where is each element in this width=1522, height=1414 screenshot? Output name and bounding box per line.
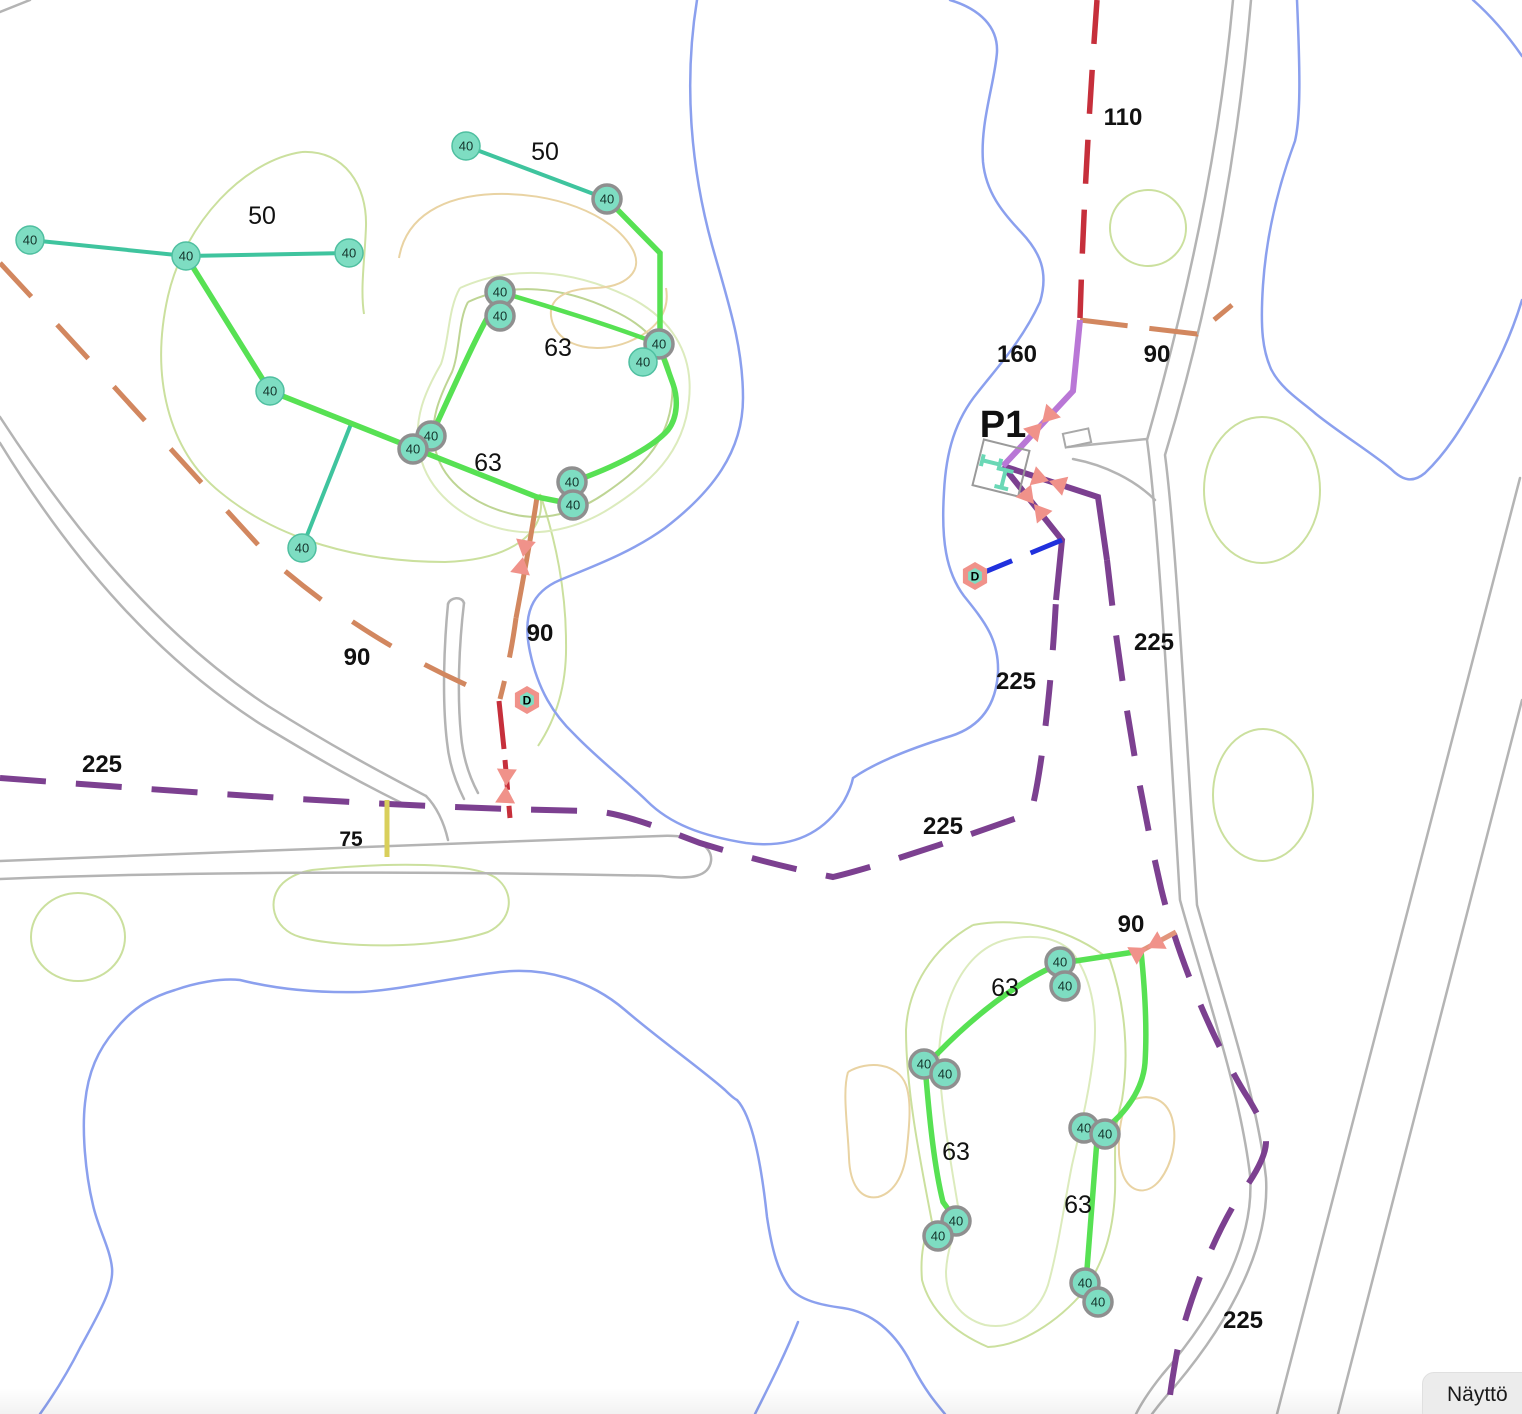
- display-settings-button[interactable]: Näyttö: [1422, 1372, 1522, 1414]
- pipe-node[interactable]: 40: [559, 491, 587, 519]
- pipe-node-label: 40: [493, 285, 507, 300]
- layer-roads: [0, 0, 1522, 1414]
- diameter-label: 75: [339, 828, 363, 851]
- diameter-label: 225: [82, 751, 122, 778]
- diameter-label: 63: [544, 334, 572, 362]
- pipe-63-lower-east[interactable]: [1102, 951, 1146, 1131]
- pipe-node-label: 40: [652, 337, 666, 352]
- pipe-node-label: 40: [295, 541, 309, 556]
- pipe-node[interactable]: 40: [629, 348, 657, 376]
- diameter-label: 63: [1064, 1191, 1092, 1219]
- pipe-90-east[interactable]: [1080, 305, 1232, 334]
- road-branch-upper: [1068, 439, 1147, 447]
- pipe-node[interactable]: 40: [452, 132, 480, 160]
- pump-station[interactable]: [973, 440, 1030, 497]
- water-stream-fork: [755, 1322, 798, 1414]
- contour-tan-lower-right: [1119, 1097, 1174, 1190]
- diameter-label: P1: [980, 404, 1026, 446]
- pipe-node-label: 40: [1098, 1127, 1112, 1142]
- pipe-red-stub-solid[interactable]: [499, 701, 504, 749]
- road-ne-left: [1136, 0, 1250, 1414]
- pipe-node[interactable]: 40: [1084, 1288, 1112, 1316]
- valve-icon[interactable]: [495, 768, 517, 803]
- map-canvas[interactable]: DD40404040404040404040404040404040404040…: [0, 0, 1522, 1414]
- road-west-upper: [0, 417, 426, 796]
- diameter-label: 225: [1223, 1307, 1263, 1334]
- outlet-marker[interactable]: D: [963, 562, 987, 590]
- diameter-label: 63: [474, 449, 502, 477]
- contour-circle-topright: [1110, 190, 1186, 266]
- diameter-label: 225: [1134, 629, 1174, 656]
- diameter-label: 90: [527, 620, 554, 647]
- contour-oval-east-1: [1204, 417, 1320, 563]
- diameter-label: 50: [248, 202, 276, 230]
- water-lake-northeast-corner: [1473, 0, 1522, 56]
- pipe-node-label: 40: [636, 355, 650, 370]
- pipe-node-label: 40: [566, 498, 580, 513]
- contour-oval-east-2: [1213, 729, 1313, 861]
- layer-contours: [31, 152, 1320, 1347]
- pipe-node[interactable]: 40: [486, 302, 514, 330]
- pump-symbol-icon: [994, 486, 1008, 489]
- contour-blob-south: [274, 865, 509, 946]
- contour-tan-lower-left: [845, 1065, 909, 1197]
- diameter-label: 63: [991, 974, 1019, 1002]
- outlet-marker-label: D: [971, 570, 980, 584]
- pipe-node-label: 40: [459, 139, 473, 154]
- pipe-node[interactable]: 40: [399, 435, 427, 463]
- pipe-node[interactable]: 40: [1091, 1120, 1119, 1148]
- road-stub-cap: [448, 598, 464, 604]
- pipe-node-label: 40: [931, 1229, 945, 1244]
- pipe-63-upper-ring-east[interactable]: [572, 345, 676, 482]
- pipe-node[interactable]: 40: [931, 1060, 959, 1088]
- outlet-marker-label: D: [523, 694, 532, 708]
- pipe-outlet-to-d[interactable]: [975, 540, 1062, 576]
- pipe-90-west-diagonal[interactable]: [0, 263, 499, 699]
- diameter-label: 160: [997, 341, 1037, 368]
- road-stub-right: [459, 603, 478, 793]
- layer-labels: 5050636363636311016090909090225225225225…: [82, 104, 1263, 1334]
- pipe-node-label: 40: [938, 1067, 952, 1082]
- pipe-node-label: 40: [917, 1057, 931, 1072]
- pipe-node[interactable]: 40: [924, 1222, 952, 1250]
- water-lake-northeast: [1262, 0, 1522, 479]
- water-stream-south: [40, 971, 945, 1414]
- pump-symbol-icon: [1001, 470, 1005, 487]
- pipe-node[interactable]: 40: [172, 242, 200, 270]
- pipe-node[interactable]: 40: [16, 226, 44, 254]
- pipe-node[interactable]: 40: [256, 377, 284, 405]
- pipe-110-main[interactable]: [1080, 0, 1097, 318]
- pipe-node[interactable]: 40: [335, 239, 363, 267]
- pipe-node-label: 40: [342, 246, 356, 261]
- pipe-node-label: 40: [263, 384, 277, 399]
- pipe-node-label: 40: [23, 233, 37, 248]
- layer-markers: DD: [515, 562, 987, 714]
- pump-symbol-icon: [982, 460, 999, 464]
- pipe-node-label: 40: [1058, 979, 1072, 994]
- road-se-left: [1277, 478, 1520, 1414]
- pipe-node[interactable]: 40: [288, 534, 316, 562]
- diameter-label: 110: [1104, 104, 1143, 131]
- road-se-right: [1338, 700, 1522, 1414]
- pipe-node-label: 40: [949, 1214, 963, 1229]
- diameter-label: 225: [996, 668, 1036, 695]
- road-junction-link: [426, 796, 448, 840]
- outlet-marker[interactable]: D: [515, 686, 539, 714]
- pipe-node-label: 40: [493, 309, 507, 324]
- layer-station: [973, 440, 1030, 497]
- pipe-node-label: 40: [1091, 1295, 1105, 1310]
- pipe-225-south-solid[interactable]: [1003, 466, 1062, 600]
- contour-upper-left-outer: [161, 152, 541, 562]
- diameter-label: 50: [531, 138, 559, 166]
- contour-circle-southwest: [31, 893, 125, 981]
- pipe-50-branch[interactable]: [302, 424, 351, 548]
- pipe-node-label: 40: [565, 475, 579, 490]
- pipe-node-label: 40: [406, 442, 420, 457]
- pipe-node-label: 40: [1078, 1276, 1092, 1291]
- pipe-90-mid-dashed[interactable]: [500, 618, 516, 699]
- pipe-node-label: 40: [179, 249, 193, 264]
- contour-upper-left-oval-east: [302, 152, 366, 314]
- map-viewport: DD40404040404040404040404040404040404040…: [0, 0, 1522, 1414]
- diameter-label: 90: [344, 644, 371, 671]
- diameter-label: 225: [923, 813, 963, 840]
- pipe-node[interactable]: 40: [1051, 972, 1079, 1000]
- diameter-label: 90: [1118, 911, 1145, 938]
- road-corner-topleft: [0, 0, 30, 12]
- pipe-node-label: 40: [600, 192, 614, 207]
- pipe-node[interactable]: 40: [593, 185, 621, 213]
- pipe-node-label: 40: [1077, 1121, 1091, 1136]
- valve-icon[interactable]: [510, 539, 536, 576]
- pipe-node-label: 40: [1053, 955, 1067, 970]
- contour-upper-ring-outer: [418, 273, 690, 532]
- diameter-label: 63: [942, 1138, 970, 1166]
- diameter-label: 90: [1144, 341, 1171, 368]
- water-lake-middle: [527, 0, 1043, 844]
